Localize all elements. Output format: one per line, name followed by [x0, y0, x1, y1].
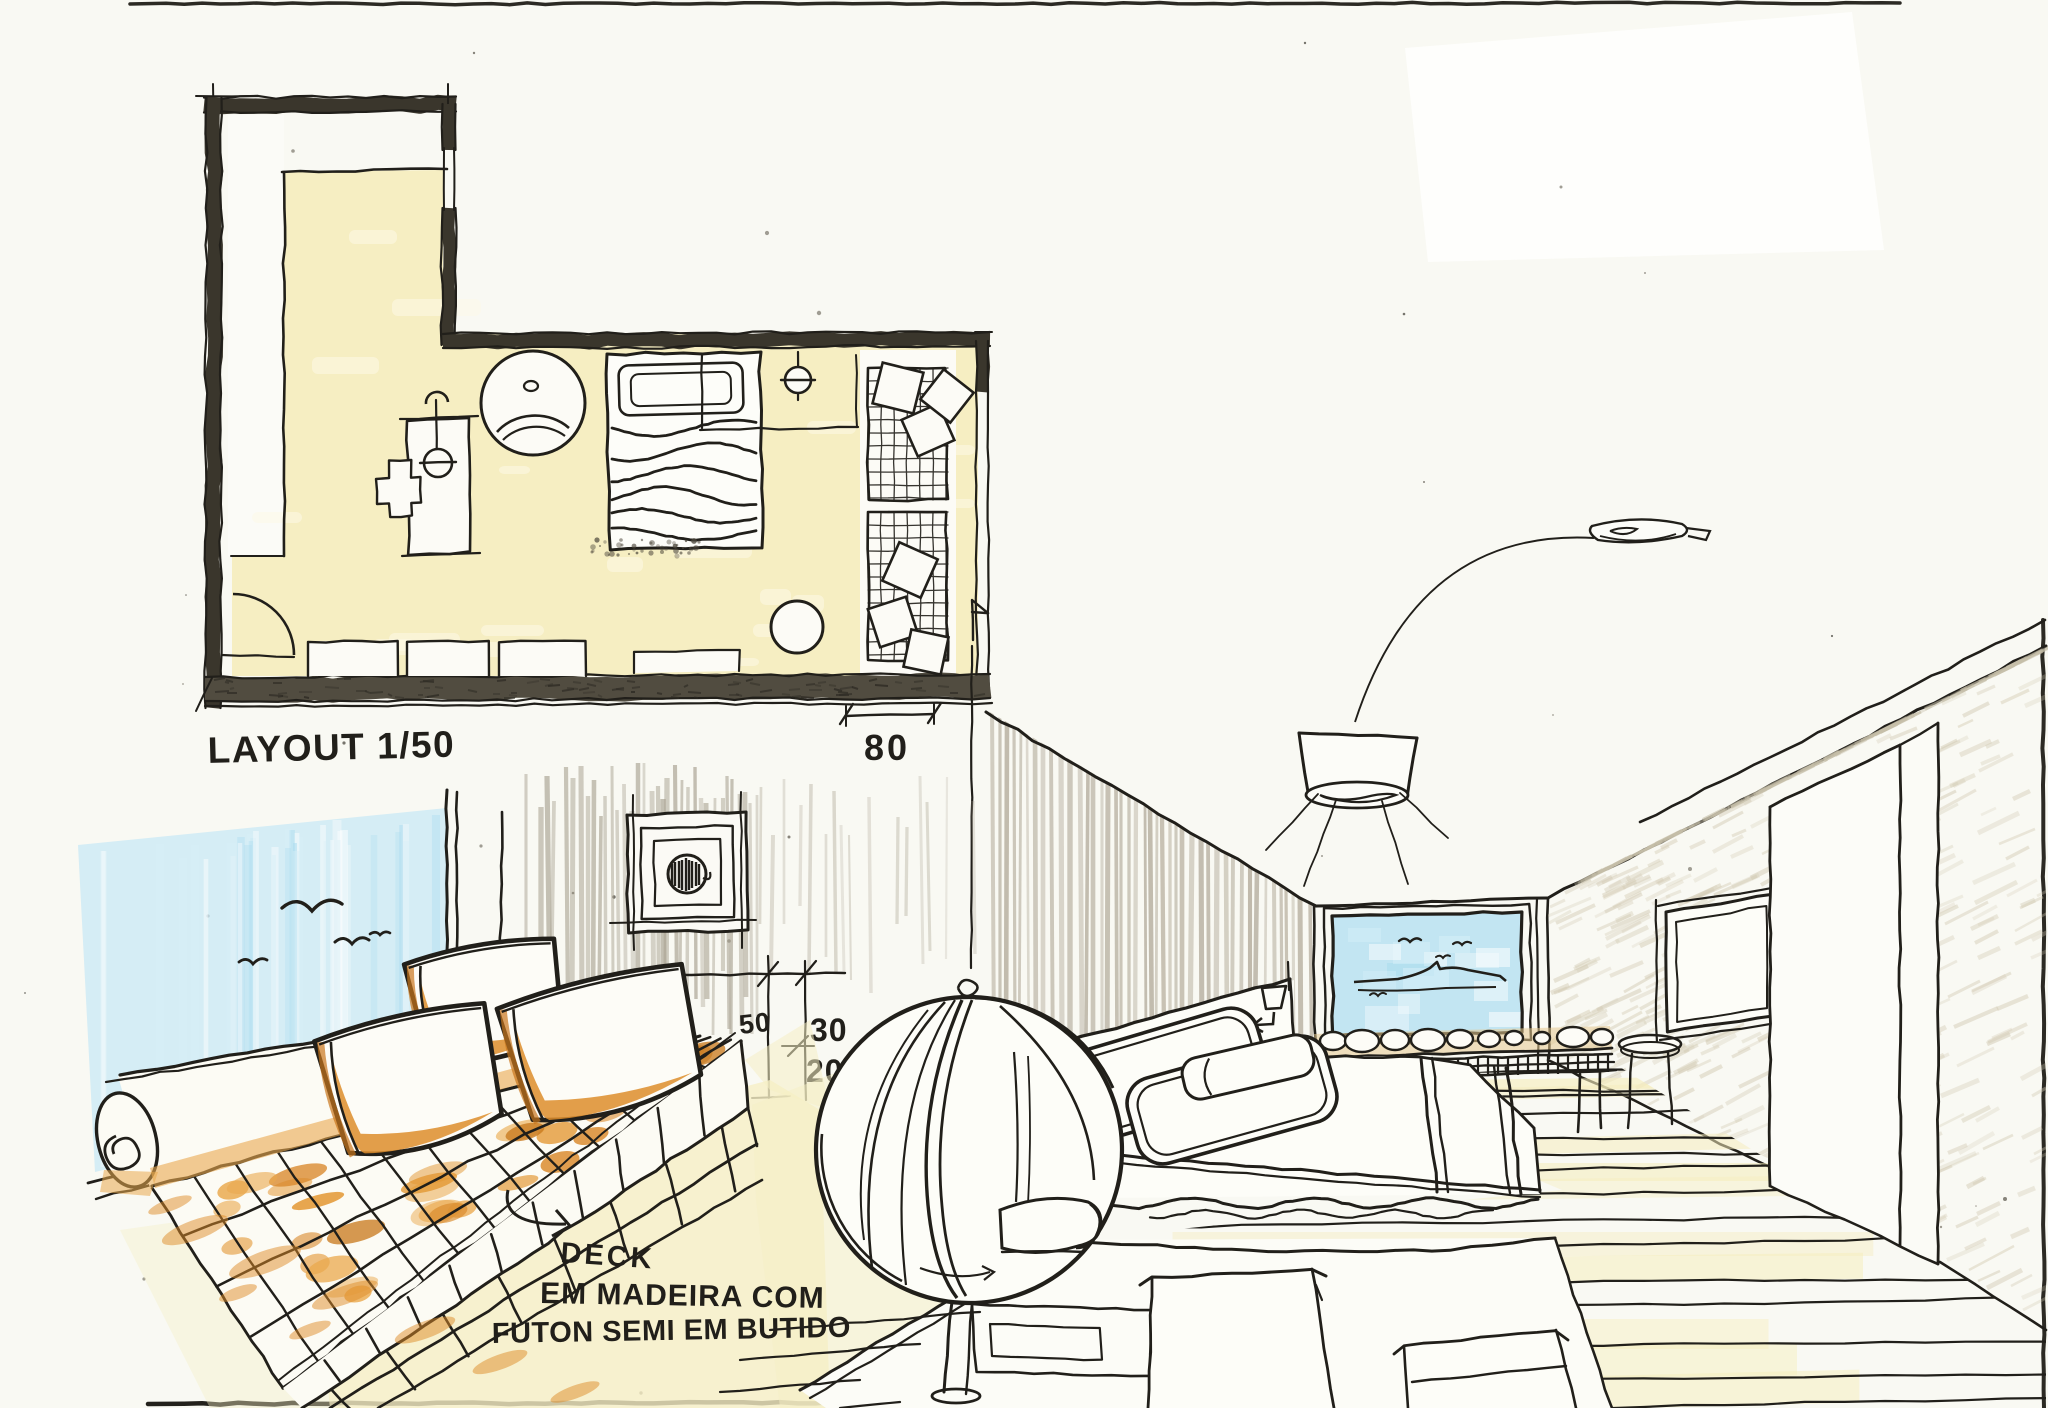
svg-text:FUTON SEMI EM BUTIDO: FUTON SEMI EM BUTIDO [492, 1312, 852, 1350]
svg-text:DECK: DECK [560, 1237, 656, 1275]
svg-text:EM MADEIRA COM: EM MADEIRA COM [540, 1277, 825, 1315]
svg-text:30: 30 [810, 1012, 848, 1048]
svg-text:80: 80 [864, 727, 910, 768]
svg-text:50: 50 [737, 1007, 772, 1040]
svg-text:LAYOUT 1/50: LAYOUT 1/50 [207, 724, 455, 771]
